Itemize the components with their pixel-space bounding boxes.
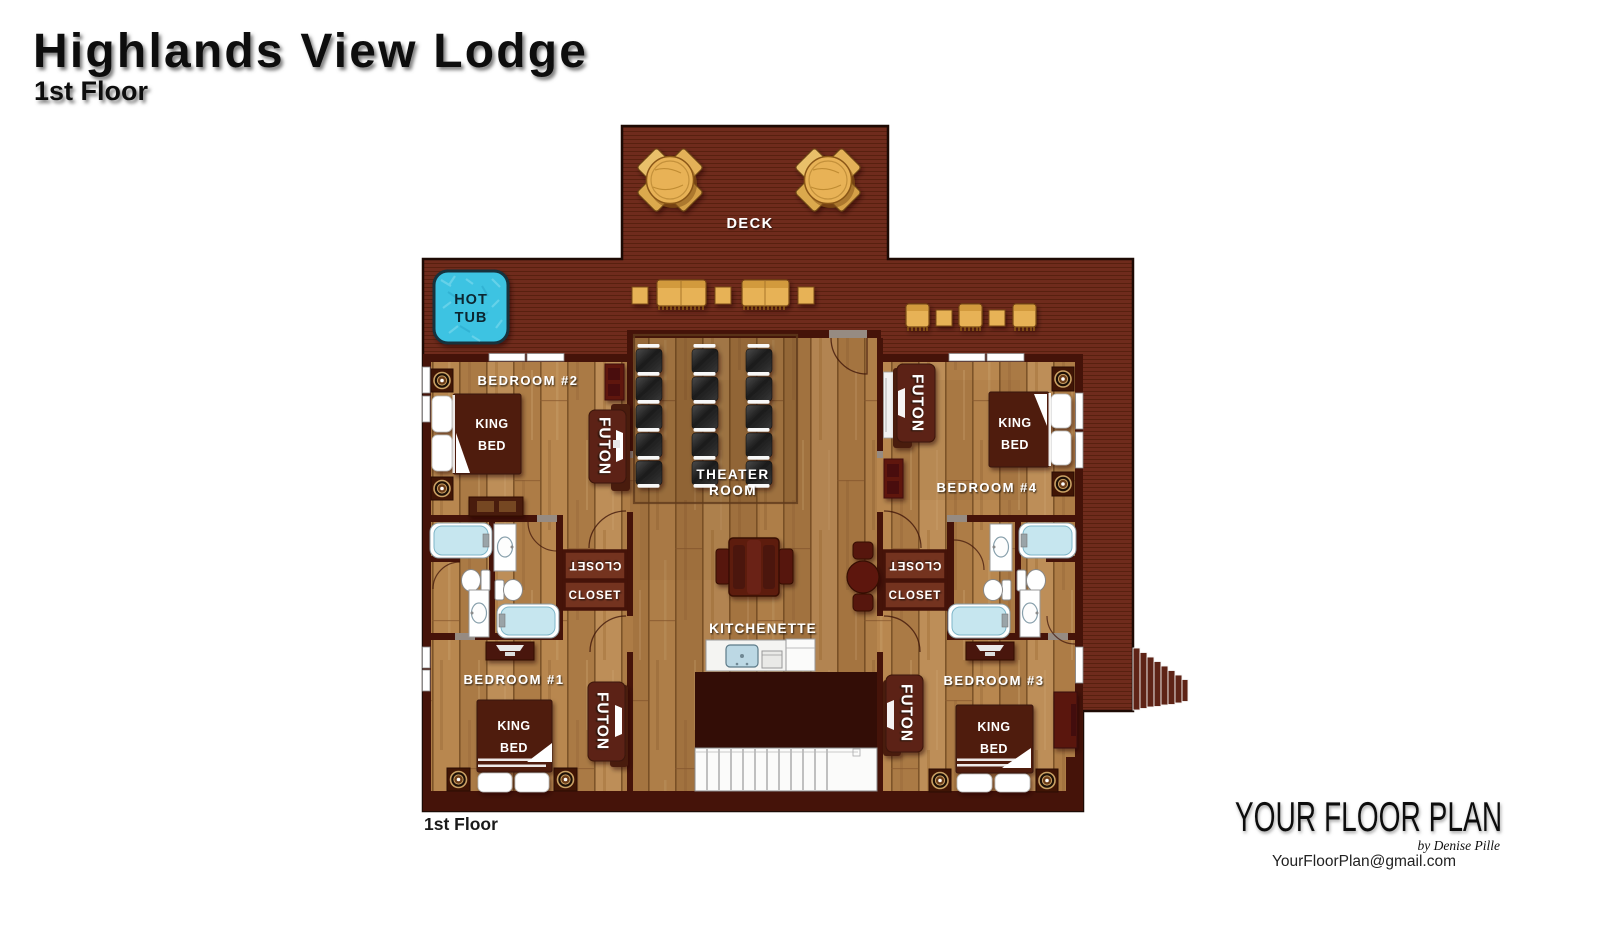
svg-text:FUTON: FUTON [898,684,915,742]
svg-text:CLOSET: CLOSET [569,559,622,571]
svg-text:THEATER: THEATER [696,467,769,482]
svg-text:CLOSET: CLOSET [569,590,622,602]
svg-text:ROOM: ROOM [709,483,757,498]
svg-text:by Denise Pille: by Denise Pille [1418,838,1500,853]
svg-text:TUB: TUB [455,310,488,326]
svg-text:CLOSET: CLOSET [889,590,942,602]
svg-text:BEDROOM #3: BEDROOM #3 [944,673,1045,688]
svg-text:CLOSET: CLOSET [889,559,942,571]
svg-text:YOUR FLOOR PLAN: YOUR FLOOR PLAN [1235,793,1502,840]
svg-text:1st Floor: 1st Floor [34,76,149,106]
svg-text:FUTON: FUTON [909,374,926,432]
svg-text:BED: BED [478,439,506,453]
svg-text:YourFloorPlan@gmail.com: YourFloorPlan@gmail.com [1272,853,1456,870]
svg-text:BED: BED [980,742,1008,756]
svg-text:KING: KING [497,719,530,733]
svg-text:FUTON: FUTON [596,417,613,475]
svg-text:BEDROOM #1: BEDROOM #1 [464,672,565,687]
svg-text:BED: BED [1001,438,1029,452]
svg-text:KING: KING [475,417,508,431]
svg-text:Highlands View Lodge: Highlands View Lodge [33,25,588,78]
svg-text:BED: BED [500,741,528,755]
svg-text:HOT: HOT [454,292,488,308]
svg-text:DECK: DECK [726,216,773,232]
svg-text:KING: KING [977,720,1010,734]
svg-text:BEDROOM #4: BEDROOM #4 [937,480,1038,495]
svg-text:KITCHENETTE: KITCHENETTE [709,621,817,636]
svg-text:BEDROOM #2: BEDROOM #2 [478,373,579,388]
svg-text:FUTON: FUTON [594,692,611,750]
svg-text:1st Floor: 1st Floor [424,814,498,834]
svg-text:KING: KING [998,416,1031,430]
